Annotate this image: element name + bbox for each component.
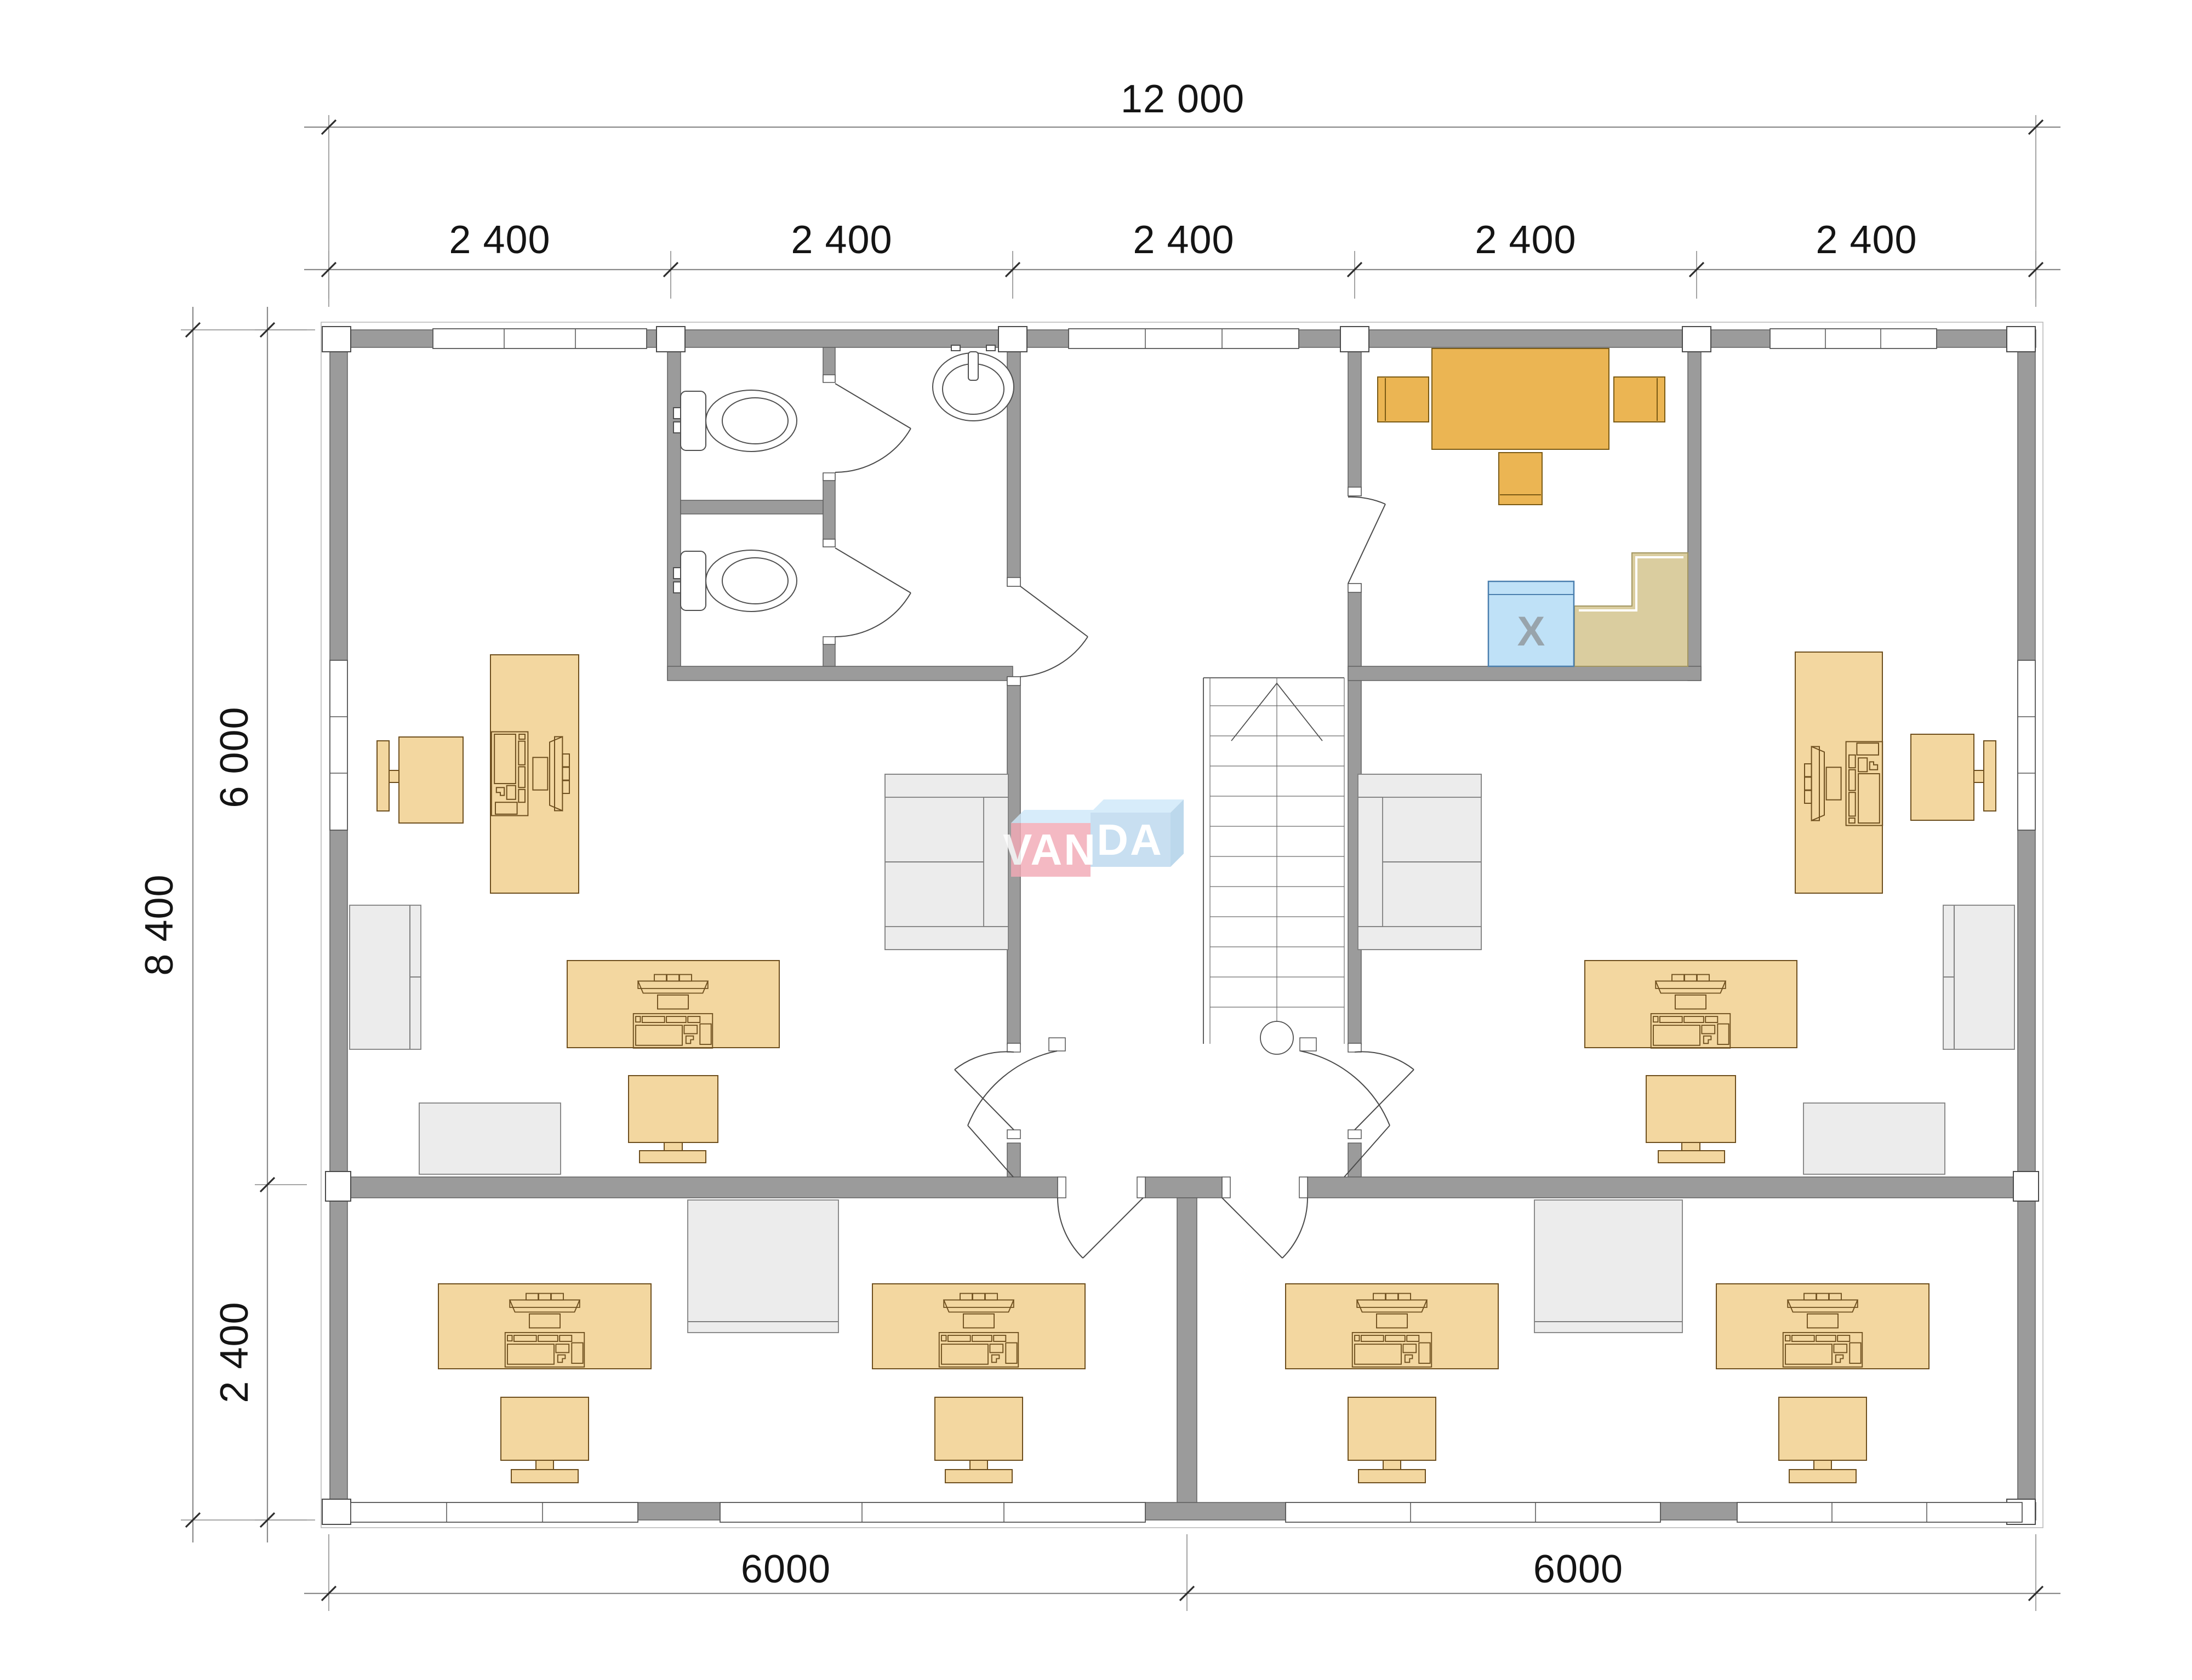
wall-exterior-left — [330, 330, 347, 1520]
desk-bottom-2 — [872, 1284, 1085, 1369]
logo-blue-top-face — [1091, 799, 1184, 813]
dim-top-seg-2: 2 400 — [791, 218, 892, 262]
chair-left-vertical-desk — [377, 737, 463, 823]
dim-left-total: 8 400 — [138, 874, 181, 975]
door-right-office — [1355, 1052, 1414, 1130]
chair-left-horizontal-desk — [629, 1076, 718, 1163]
sofa-left-office — [885, 774, 1008, 950]
kitchen-appliance: X — [1488, 581, 1574, 666]
wall-bottom-rooms-divider — [1177, 1198, 1197, 1502]
desk-right-vertical — [1795, 652, 1882, 893]
dim-top-total: 12 000 — [1121, 77, 1245, 121]
column-top-4 — [1340, 327, 1369, 352]
staircase — [1203, 678, 1344, 1054]
meeting-chair-right — [1614, 377, 1665, 422]
table-bottom-left-grey — [688, 1200, 838, 1333]
wall-corridor-right-upper — [1348, 347, 1361, 496]
dim-left-upper: 6 000 — [213, 706, 256, 808]
window-bottom-4 — [1737, 1502, 2022, 1522]
cabinet-left-office — [350, 905, 421, 1049]
left-office-furniture — [350, 655, 1008, 1174]
vanda-watermark: VAN DA — [1003, 799, 1184, 877]
table-right-office-grey — [1803, 1103, 1945, 1174]
floor-plan-canvas: X — [0, 0, 2192, 1680]
wall-stall-front-3 — [823, 641, 835, 666]
chair-bottom-4 — [1779, 1397, 1866, 1483]
door-toilet-stall-2 — [835, 548, 911, 637]
wall-stall-front-2 — [823, 474, 835, 547]
toilet-stall-1 — [673, 390, 797, 452]
column-top-6 — [2007, 327, 2035, 352]
window-bottom-3 — [1286, 1502, 1660, 1522]
desk-bottom-1 — [438, 1284, 651, 1369]
desk-bottom-3 — [1286, 1284, 1498, 1369]
door-toilet-stall-1 — [835, 384, 911, 472]
cabinet-right-office — [1943, 905, 2014, 1049]
kitchen-furniture: X — [1378, 348, 1688, 666]
window-bottom-2 — [720, 1502, 1145, 1522]
stair-start-marker — [1260, 1021, 1293, 1054]
meeting-table — [1432, 348, 1609, 449]
door-kitchen — [1348, 497, 1385, 584]
meeting-chair-bottom — [1499, 453, 1542, 505]
column-top-3 — [998, 327, 1027, 352]
dim-top-seg-3: 2 400 — [1133, 218, 1234, 262]
window-top-bay1 — [433, 329, 647, 348]
desk-left-horizontal — [567, 961, 779, 1048]
logo-text-da: DA — [1097, 815, 1163, 864]
chair-right-horizontal-desk — [1646, 1076, 1736, 1163]
column-right-mid — [2013, 1172, 2039, 1201]
window-left-wall — [330, 660, 347, 830]
chair-bottom-3 — [1348, 1397, 1436, 1483]
wall-toilet-bottom — [667, 666, 1013, 681]
column-top-5 — [1682, 327, 1711, 352]
column-left-mid — [326, 1172, 351, 1201]
door-left-office — [955, 1052, 1014, 1130]
right-office-furniture — [1358, 652, 2014, 1174]
chair-bottom-2 — [935, 1397, 1023, 1483]
door-bottom-left-room — [1058, 1198, 1143, 1258]
door-entrance-right — [1300, 1051, 1390, 1177]
window-right-wall — [2018, 660, 2035, 830]
logo-pink-top-face — [1011, 810, 1104, 823]
door-bottom-right-room — [1222, 1198, 1308, 1258]
window-top-bay3 — [1069, 329, 1299, 348]
window-bottom-1 — [351, 1502, 638, 1522]
appliance-x-label: X — [1517, 608, 1545, 655]
wall-mid-left — [347, 1177, 1058, 1198]
bathroom-fixtures — [673, 345, 1014, 612]
table-left-office-grey — [419, 1103, 561, 1174]
door-bathroom — [1020, 586, 1088, 677]
wall-kitchen-bottom — [1348, 666, 1701, 681]
column-top-1 — [322, 327, 351, 352]
chair-right-vertical-desk — [1911, 734, 1996, 820]
column-bottom-left — [322, 1499, 351, 1524]
logo-text-van: VAN — [1003, 825, 1097, 874]
wall-stall-divider — [681, 500, 823, 514]
dim-top-seg-4: 2 400 — [1475, 218, 1576, 262]
meeting-chair-left — [1378, 377, 1429, 422]
table-bottom-right-grey — [1534, 1200, 1682, 1333]
dim-top-seg-5: 2 400 — [1816, 218, 1917, 262]
wall-kitchen-right — [1688, 347, 1701, 681]
window-top-bay5 — [1770, 329, 1937, 348]
wall-toilet-left — [667, 347, 681, 679]
dim-top-seg-1: 2 400 — [449, 218, 550, 262]
desk-left-vertical — [490, 655, 579, 893]
column-top-2 — [657, 327, 685, 352]
dim-left-lower: 2 400 — [213, 1301, 256, 1403]
dim-bottom-left: 6000 — [741, 1547, 831, 1591]
wall-exterior-right — [2018, 330, 2035, 1520]
desk-bottom-4 — [1716, 1284, 1929, 1369]
wall-mid-center — [1145, 1177, 1222, 1198]
wall-mid-right — [1308, 1177, 2018, 1198]
toilet-stall-2 — [673, 550, 797, 612]
desk-right-horizontal — [1585, 961, 1797, 1048]
sofa-right-office — [1358, 774, 1481, 950]
chair-bottom-1 — [501, 1397, 589, 1483]
sink — [933, 345, 1014, 421]
dim-bottom-right: 6000 — [1533, 1547, 1623, 1591]
